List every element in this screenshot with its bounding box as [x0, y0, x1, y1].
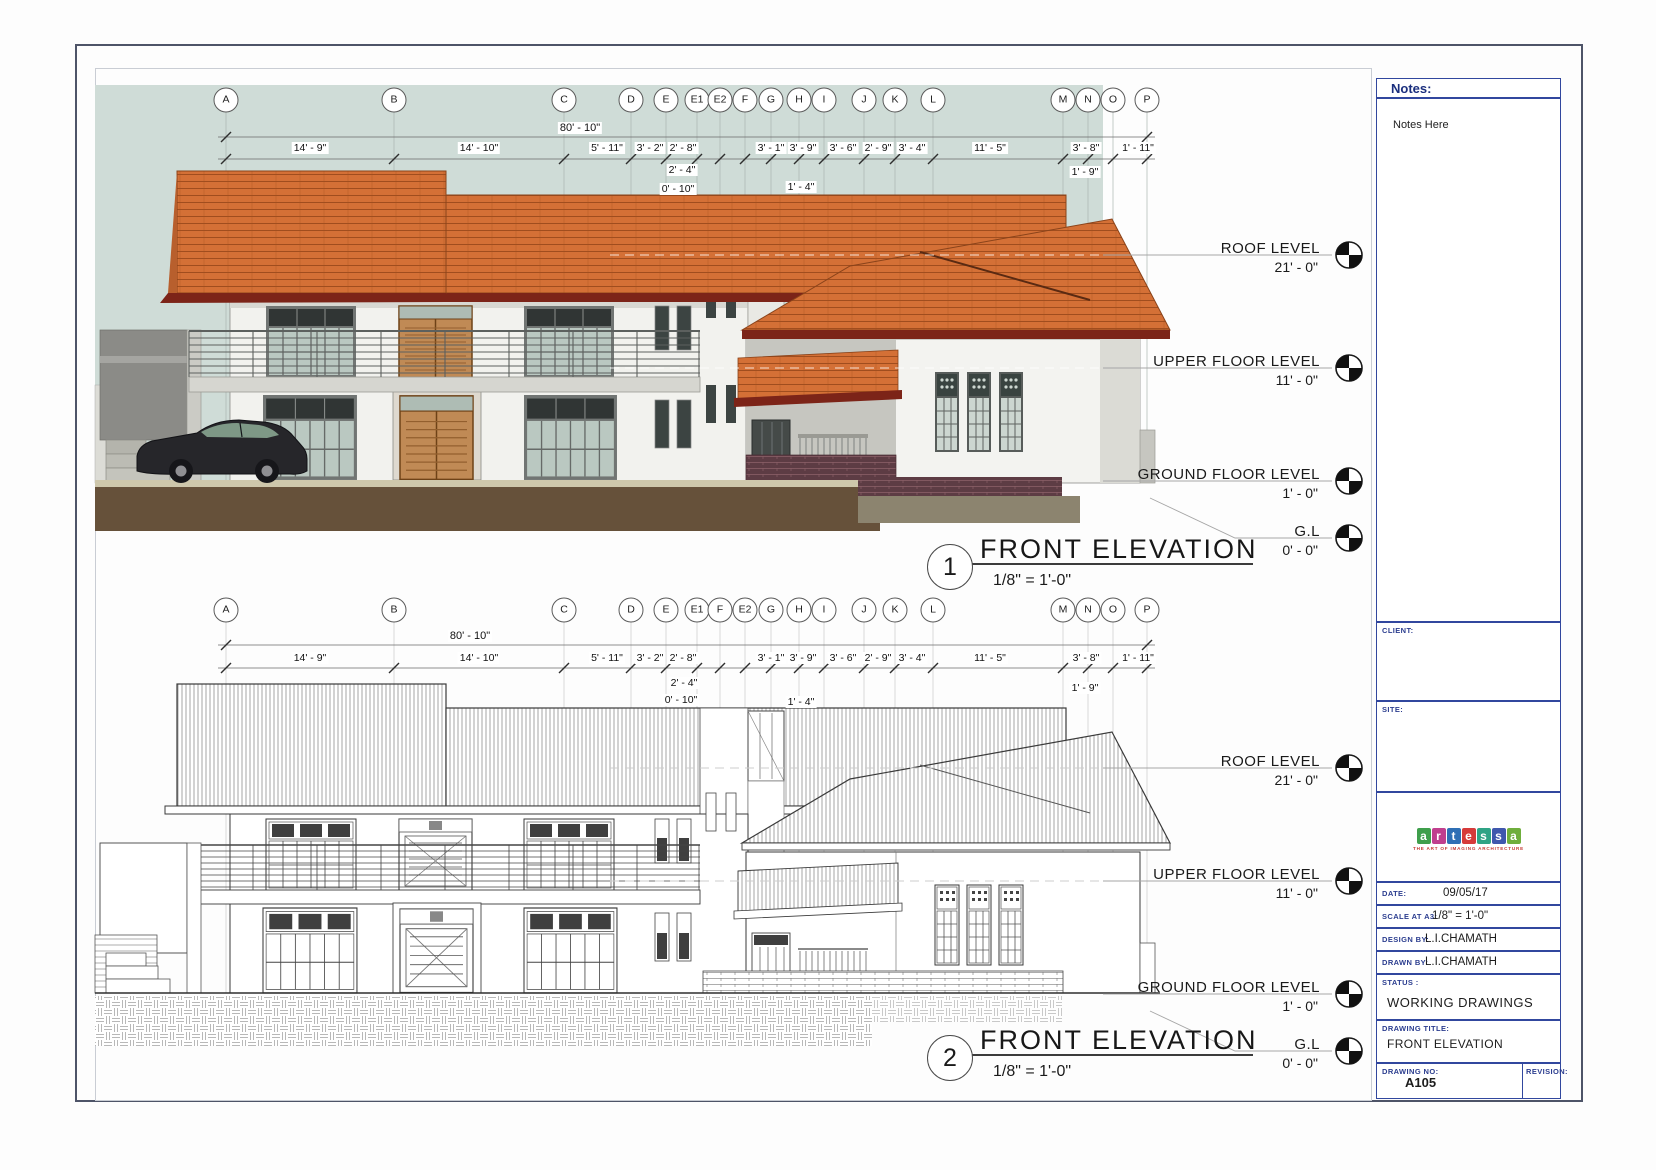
scale-label: SCALE AT A3: — [1382, 912, 1437, 921]
site-label: SITE: — [1382, 705, 1403, 714]
status-value: WORKING DRAWINGS — [1387, 995, 1533, 1010]
view1-scale: 1/8" = 1'-0" — [993, 572, 1071, 590]
view2-title-line — [971, 1054, 1253, 1056]
view1-number: 1 — [927, 544, 973, 590]
view2-number: 2 — [927, 1035, 973, 1081]
notes-header-box: Notes: — [1376, 78, 1561, 98]
drawing-title-label: DRAWING TITLE: — [1382, 1024, 1449, 1033]
drawn-by-box: DRAWN BY: L.I.CHAMATH — [1376, 951, 1561, 974]
client-box: CLIENT: — [1376, 622, 1561, 701]
notes-text: Notes Here — [1393, 119, 1449, 131]
artessa-logo: artessa THE ART OF IMAGING ARCHITECTURE — [1377, 827, 1560, 851]
status-box: STATUS : WORKING DRAWINGS — [1376, 974, 1561, 1020]
drawing-title-value: FRONT ELEVATION — [1387, 1037, 1503, 1051]
notes-body-box: Notes Here — [1376, 98, 1561, 622]
view1-title: FRONT ELEVATION — [980, 534, 1258, 565]
scale-box: SCALE AT A3: 1/8" = 1'-0" — [1376, 905, 1561, 928]
status-label: STATUS : — [1382, 978, 1419, 987]
logo-letter: e — [1462, 828, 1476, 844]
design-by-label: DESIGN BY: — [1382, 935, 1429, 944]
view2-scale: 1/8" = 1'-0" — [993, 1063, 1071, 1081]
revision-divider — [1522, 1064, 1523, 1098]
view2-title: FRONT ELEVATION — [980, 1025, 1258, 1056]
drawing-title-box: DRAWING TITLE: FRONT ELEVATION — [1376, 1020, 1561, 1063]
logo-letter: r — [1432, 828, 1446, 844]
date-box: DATE: 09/05/17 — [1376, 882, 1561, 905]
drawn-by-label: DRAWN BY: — [1382, 958, 1428, 967]
revision-label: REVISION: — [1526, 1067, 1568, 1076]
drawing-area-border — [95, 68, 1372, 1101]
overall-dimension-bottom: 80' - 10" — [448, 630, 492, 642]
logo-letter: s — [1477, 828, 1491, 844]
logo-letter: a — [1507, 828, 1521, 844]
logo-letter: s — [1492, 828, 1506, 844]
design-by-box: DESIGN BY: L.I.CHAMATH — [1376, 928, 1561, 951]
date-label: DATE: — [1382, 889, 1406, 898]
client-label: CLIENT: — [1382, 626, 1414, 635]
drawing-no-value: A105 — [1405, 1075, 1436, 1090]
notes-label: Notes: — [1391, 81, 1431, 96]
drawn-by-value: L.I.CHAMATH — [1425, 956, 1497, 968]
logo-letters: artessa — [1416, 827, 1521, 844]
view1-title-line — [971, 563, 1253, 565]
logo-letter: t — [1447, 828, 1461, 844]
logo-box: artessa THE ART OF IMAGING ARCHITECTURE — [1376, 792, 1561, 882]
scale-value: 1/8" = 1'-0" — [1432, 910, 1488, 922]
logo-tagline: THE ART OF IMAGING ARCHITECTURE — [1377, 846, 1560, 851]
drawing-no-box: DRAWING NO: A105 REVISION: — [1376, 1063, 1561, 1099]
design-by-value: L.I.CHAMATH — [1425, 933, 1497, 945]
site-box: SITE: — [1376, 701, 1561, 792]
overall-dimension-top: 80' - 10" — [558, 122, 602, 134]
date-value: 09/05/17 — [1443, 887, 1488, 899]
logo-letter: a — [1417, 828, 1431, 844]
